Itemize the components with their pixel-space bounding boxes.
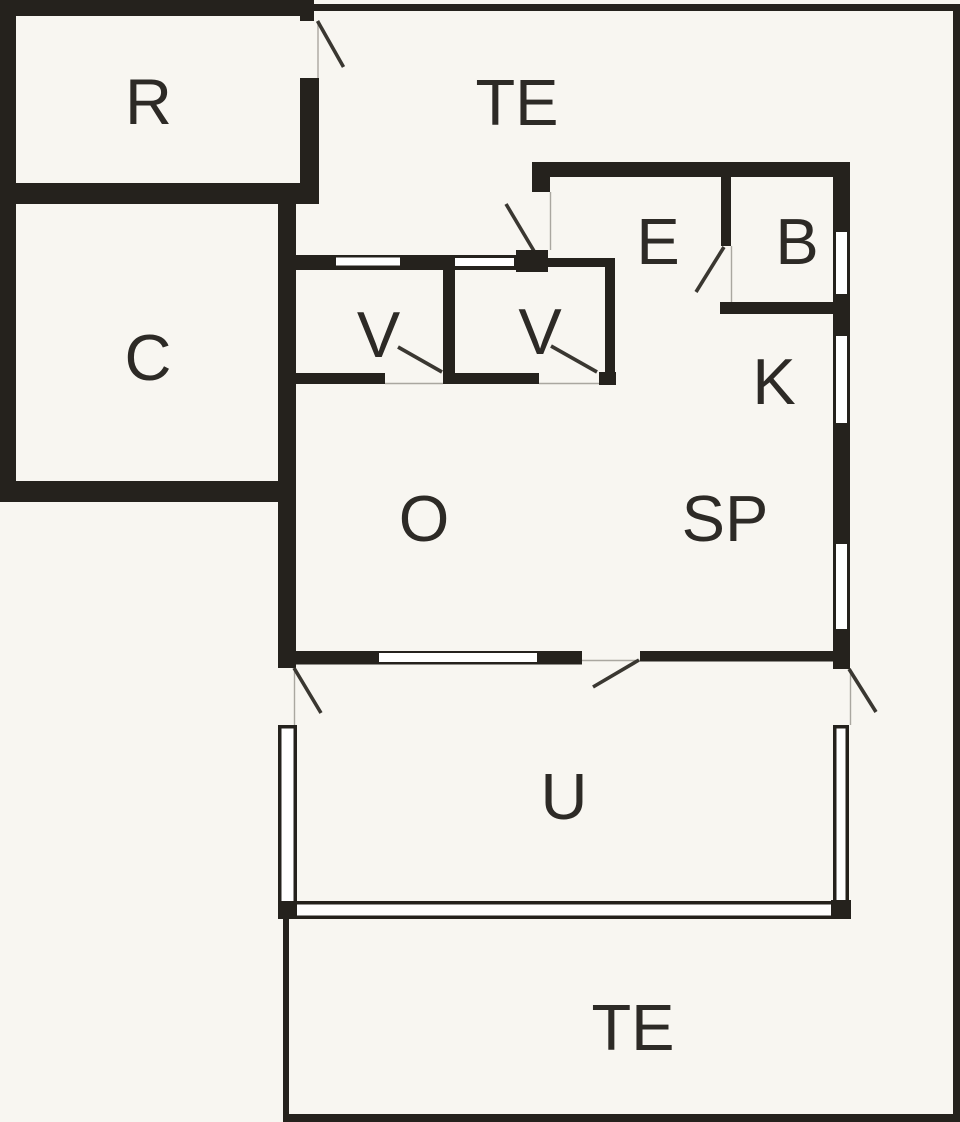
svg-text:C: C <box>125 321 172 394</box>
svg-text:E: E <box>636 205 679 278</box>
svg-text:K: K <box>752 345 795 418</box>
svg-text:V: V <box>518 295 562 368</box>
svg-text:V: V <box>357 298 401 371</box>
svg-text:SP: SP <box>682 482 769 555</box>
svg-text:R: R <box>125 65 172 138</box>
svg-text:TE: TE <box>475 66 558 139</box>
svg-text:B: B <box>775 205 818 278</box>
svg-text:O: O <box>399 482 450 555</box>
svg-text:U: U <box>541 760 588 833</box>
svg-text:TE: TE <box>591 991 674 1064</box>
